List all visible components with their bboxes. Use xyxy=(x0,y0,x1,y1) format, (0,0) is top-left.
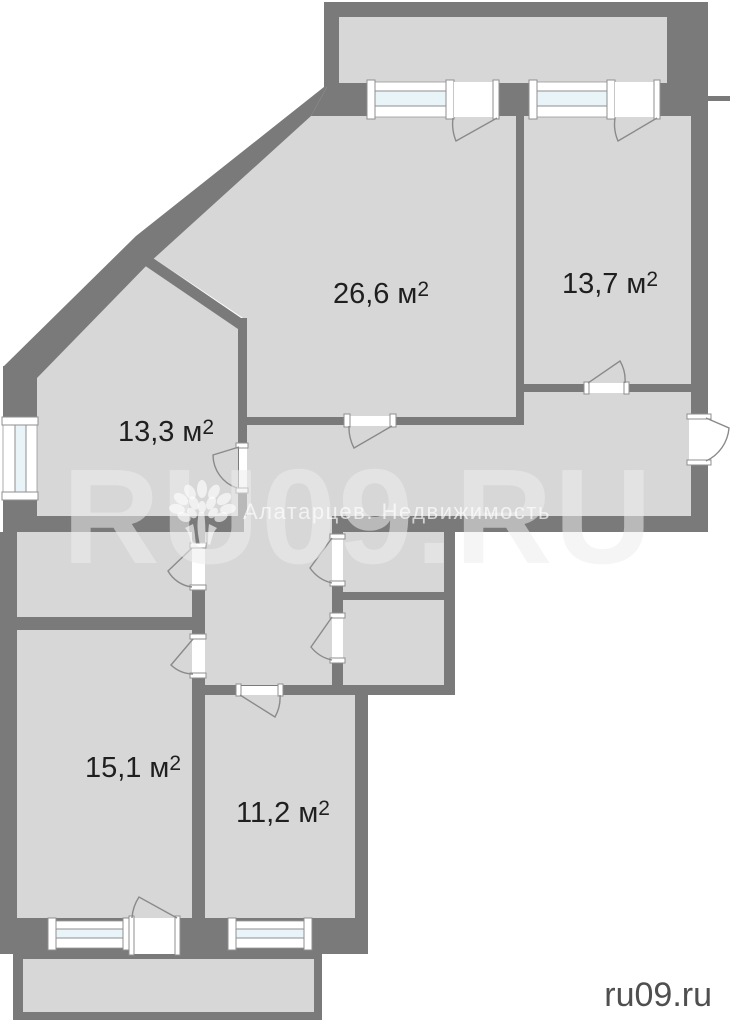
svg-text:ru09.ru: ru09.ru xyxy=(604,976,712,1014)
svg-text:13,3 м2: 13,3 м2 xyxy=(118,416,214,448)
svg-text:13,7 м2: 13,7 м2 xyxy=(562,268,658,300)
svg-text:Алатарцев. Недвижимость: Алатарцев. Недвижимость xyxy=(243,499,551,524)
svg-text:11,2 м2: 11,2 м2 xyxy=(236,797,330,829)
svg-text:15,1 м2: 15,1 м2 xyxy=(85,752,181,784)
svg-text:26,6 м2: 26,6 м2 xyxy=(333,278,429,310)
